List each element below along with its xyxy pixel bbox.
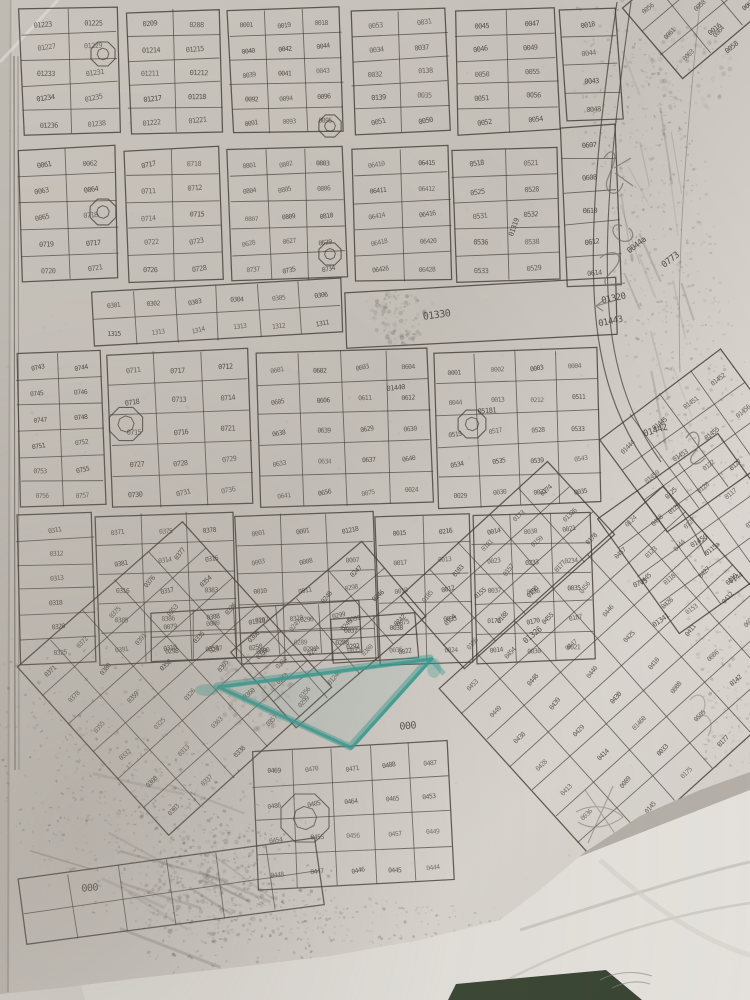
parcel-number: 0029 (454, 492, 468, 500)
parcel-number: 01225 (84, 19, 102, 27)
parcel-number: 0044 (448, 398, 462, 407)
parcel-number: 0606 (316, 396, 330, 405)
parcel-number: 0313 (50, 574, 65, 583)
parcel-number: 0013 (491, 395, 505, 404)
parcel-number: 01212 (190, 69, 209, 77)
parcel-number: 0139 (371, 93, 386, 102)
parcel-number: 01223 (33, 20, 52, 29)
parcel-number: 0383 (204, 586, 218, 594)
parcel-number: 0017 (393, 558, 408, 567)
parcel-number: 0720 (41, 267, 56, 275)
parcel-number: 0533 (571, 425, 585, 433)
parcel-number: 0138 (418, 67, 433, 76)
parcel-number: 0092 (245, 95, 259, 103)
parcel-number: 0055 (525, 68, 540, 76)
parcel-number: 0371 (110, 528, 125, 538)
parcel-number: 0630 (403, 424, 417, 433)
parcel-number: 0528 (524, 185, 539, 194)
parcel-number: 0318 (49, 599, 63, 608)
parcel-number: 0730 (128, 490, 143, 499)
parcel-number: 0301 (107, 301, 122, 310)
map-annotation: 05181 (477, 406, 496, 415)
parcel-number: 0748 (74, 413, 89, 422)
parcel-number: 0717 (170, 367, 185, 376)
parcel-number: 01211 (141, 70, 160, 79)
parcel-number: 0801 (242, 161, 257, 170)
parcel-number: 0004 (568, 362, 582, 371)
parcel-number: 0515 (448, 430, 463, 440)
parcel-number: 0715 (127, 428, 142, 436)
parcel-number: 0807 (245, 215, 259, 223)
parcel-number: 0464 (344, 797, 359, 806)
parcel-number: 0726 (143, 266, 158, 274)
parcel-number: 0727 (129, 460, 144, 469)
parcel-number: 0043 (584, 77, 599, 86)
parcel-number: 0611 (358, 394, 372, 403)
parcel-number: 0298 (165, 647, 179, 656)
parcel-number: 0809 (281, 212, 296, 222)
parcel-number: 0532 (523, 210, 538, 219)
parcel-number: 1315 (107, 330, 121, 338)
parcel-number: 0713 (172, 396, 187, 404)
parcel-number: 0728 (173, 459, 189, 469)
parcel-number: 0035 (417, 91, 432, 99)
parcel-number: 0602 (313, 367, 327, 375)
parcel-number: 0641 (277, 491, 292, 501)
parcel-number: 0062 (82, 160, 97, 169)
parcel-number: 0054 (528, 115, 544, 125)
parcel-number: 0747 (33, 416, 48, 425)
parcel-number: 0001 (447, 368, 461, 377)
parcel-number: 0528 (531, 426, 546, 435)
parcel-number: 0079 (163, 622, 178, 631)
parcel-number: 0093 (282, 117, 296, 126)
parcel-number: 0449 (426, 827, 440, 835)
parcel-number: 0385 (115, 616, 129, 624)
parcel-number: 0757 (75, 491, 90, 500)
parcel-number: 06412 (418, 185, 435, 193)
parcel-number: 0049 (523, 43, 538, 52)
parcel-number: 06420 (420, 237, 438, 246)
parcel-number: 0043 (316, 67, 330, 76)
parcel-number: 0627 (282, 236, 297, 246)
parcel-number: 1313 (233, 322, 248, 332)
parcel-number: 0096 (317, 92, 332, 101)
parcel-number: 0034 (369, 45, 385, 55)
parcel-number: 0538 (524, 238, 539, 247)
parcel-number: 0737 (246, 265, 261, 274)
parcel-number: 0521 (523, 159, 538, 168)
parcel-number: 0051 (474, 94, 489, 103)
parcel-number: 0614 (587, 269, 603, 278)
parcel-number: 0444 (426, 863, 441, 873)
parcel-number: 0056 (526, 91, 541, 99)
parcel-number: 0040 (241, 47, 256, 56)
parcel-number: 0045 (474, 22, 489, 31)
parcel-number: 0044 (581, 49, 597, 59)
parcel-number: 0806 (317, 184, 331, 193)
parcel-number: 0457 (388, 829, 403, 838)
parcel-number: 0094 (279, 94, 294, 103)
parcel-number: 0612 (401, 393, 415, 402)
parcel-number: 0716 (173, 428, 189, 437)
parcel-number: 0529 (526, 264, 542, 274)
parcel-number: 0305 (272, 293, 287, 303)
parcel-number: 0023 (487, 556, 502, 566)
parcel-number: 0014 (489, 645, 504, 655)
parcel-number: 0604 (401, 363, 415, 372)
parcel-number: 0752 (74, 438, 89, 448)
parcel-number: 0030 (523, 527, 538, 536)
cadastral-map-canvas: 0122301225012270122901233012310123401235… (0, 0, 750, 1000)
parcel-number: 0024 (405, 486, 419, 494)
parcel-number: 0536 (473, 238, 488, 246)
parcel-number: 0711 (141, 187, 156, 195)
parcel-number: 0487 (423, 759, 437, 768)
parcel-number: 0445 (388, 866, 402, 874)
parcel-number: 01229 (84, 42, 103, 51)
parcel-number: 01214 (142, 46, 161, 54)
parcel-number: 0041 (278, 69, 292, 77)
parcel-number: 0002 (490, 365, 504, 374)
parcel-number: 1312 (271, 321, 286, 330)
parcel-number: 0753 (33, 467, 47, 475)
parcel-number: 0719 (39, 240, 54, 249)
parcel-number: 0714 (220, 394, 235, 403)
parcel-number: 0756 (35, 492, 49, 500)
parcel-number: 0035 (347, 645, 362, 655)
parcel-number: 0306 (314, 291, 329, 300)
parcel-number: 0001 (239, 21, 253, 29)
parcel-number: 0037 (487, 586, 501, 595)
parcel-number: 0047 (524, 19, 539, 28)
parcel-number: 0312 (49, 549, 63, 558)
parcel-number: 0208 (189, 21, 204, 29)
parcel-number: 0015 (392, 529, 406, 538)
parcel-number: 0469 (267, 767, 281, 775)
parcel-number: 0010 (253, 587, 268, 596)
parcel-number: 0539 (530, 456, 545, 465)
parcel-number: 0803 (316, 159, 330, 167)
parcel-number: 0042 (278, 44, 293, 53)
parcel-number: 0746 (74, 388, 88, 397)
parcel-number: 0456 (346, 831, 360, 839)
parcel-number: 06428 (418, 265, 436, 274)
parcel-number: 01236 (40, 122, 59, 130)
parcel-number: 01218 (188, 93, 207, 101)
parcel-number: 0378 (202, 526, 216, 535)
parcel-number: 0304 (230, 295, 244, 303)
parcel-number: 0302 (146, 299, 160, 308)
parcel-number: 0610 (583, 207, 598, 215)
parcel-number: 0018 (315, 19, 329, 27)
parcel-number: 0453 (422, 792, 437, 802)
parcel-number: 0050 (474, 70, 489, 79)
parcel-number: 0533 (474, 267, 489, 275)
parcel-number: 0637 (362, 456, 376, 465)
parcel-number: 0007 (345, 556, 359, 565)
parcel-number: 0325 (53, 648, 67, 657)
parcel-number: 0608 (582, 173, 597, 182)
parcel-number: 0639 (317, 427, 331, 435)
parcel-number: 0745 (30, 389, 45, 398)
parcel-number: 0715 (190, 211, 205, 219)
parcel-number: 0212 (530, 396, 544, 404)
parcel-number: 0717 (86, 239, 102, 248)
parcel-number: 0634 (318, 457, 332, 465)
parcel-number: 0714 (141, 214, 156, 223)
parcel-number: 0019 (277, 21, 292, 31)
parcel-number: 0722 (144, 238, 159, 247)
parcel-number: 0712 (187, 184, 202, 193)
map-annotation: 000 (399, 720, 417, 732)
parcel-number: 0607 (582, 141, 597, 150)
parcel-number: 0712 (218, 362, 233, 371)
parcel-number: 0037 (414, 43, 430, 52)
photo-of-cadastral-map: 0122301225012270122901233012310123401235… (0, 0, 750, 1000)
parcel-number: 06415 (418, 159, 435, 167)
parcel-number: 0032 (367, 70, 382, 79)
parcel-number: 0511 (572, 393, 586, 402)
parcel-number: 0465 (386, 794, 401, 803)
parcel-number: 0209 (142, 19, 157, 28)
parcel-number: 0718 (186, 160, 201, 168)
map-annotation: 000 (81, 882, 99, 894)
parcel-number: 01215 (185, 45, 204, 55)
parcel-number: 0721 (220, 424, 235, 432)
parcel-number: 01233 (37, 70, 55, 78)
